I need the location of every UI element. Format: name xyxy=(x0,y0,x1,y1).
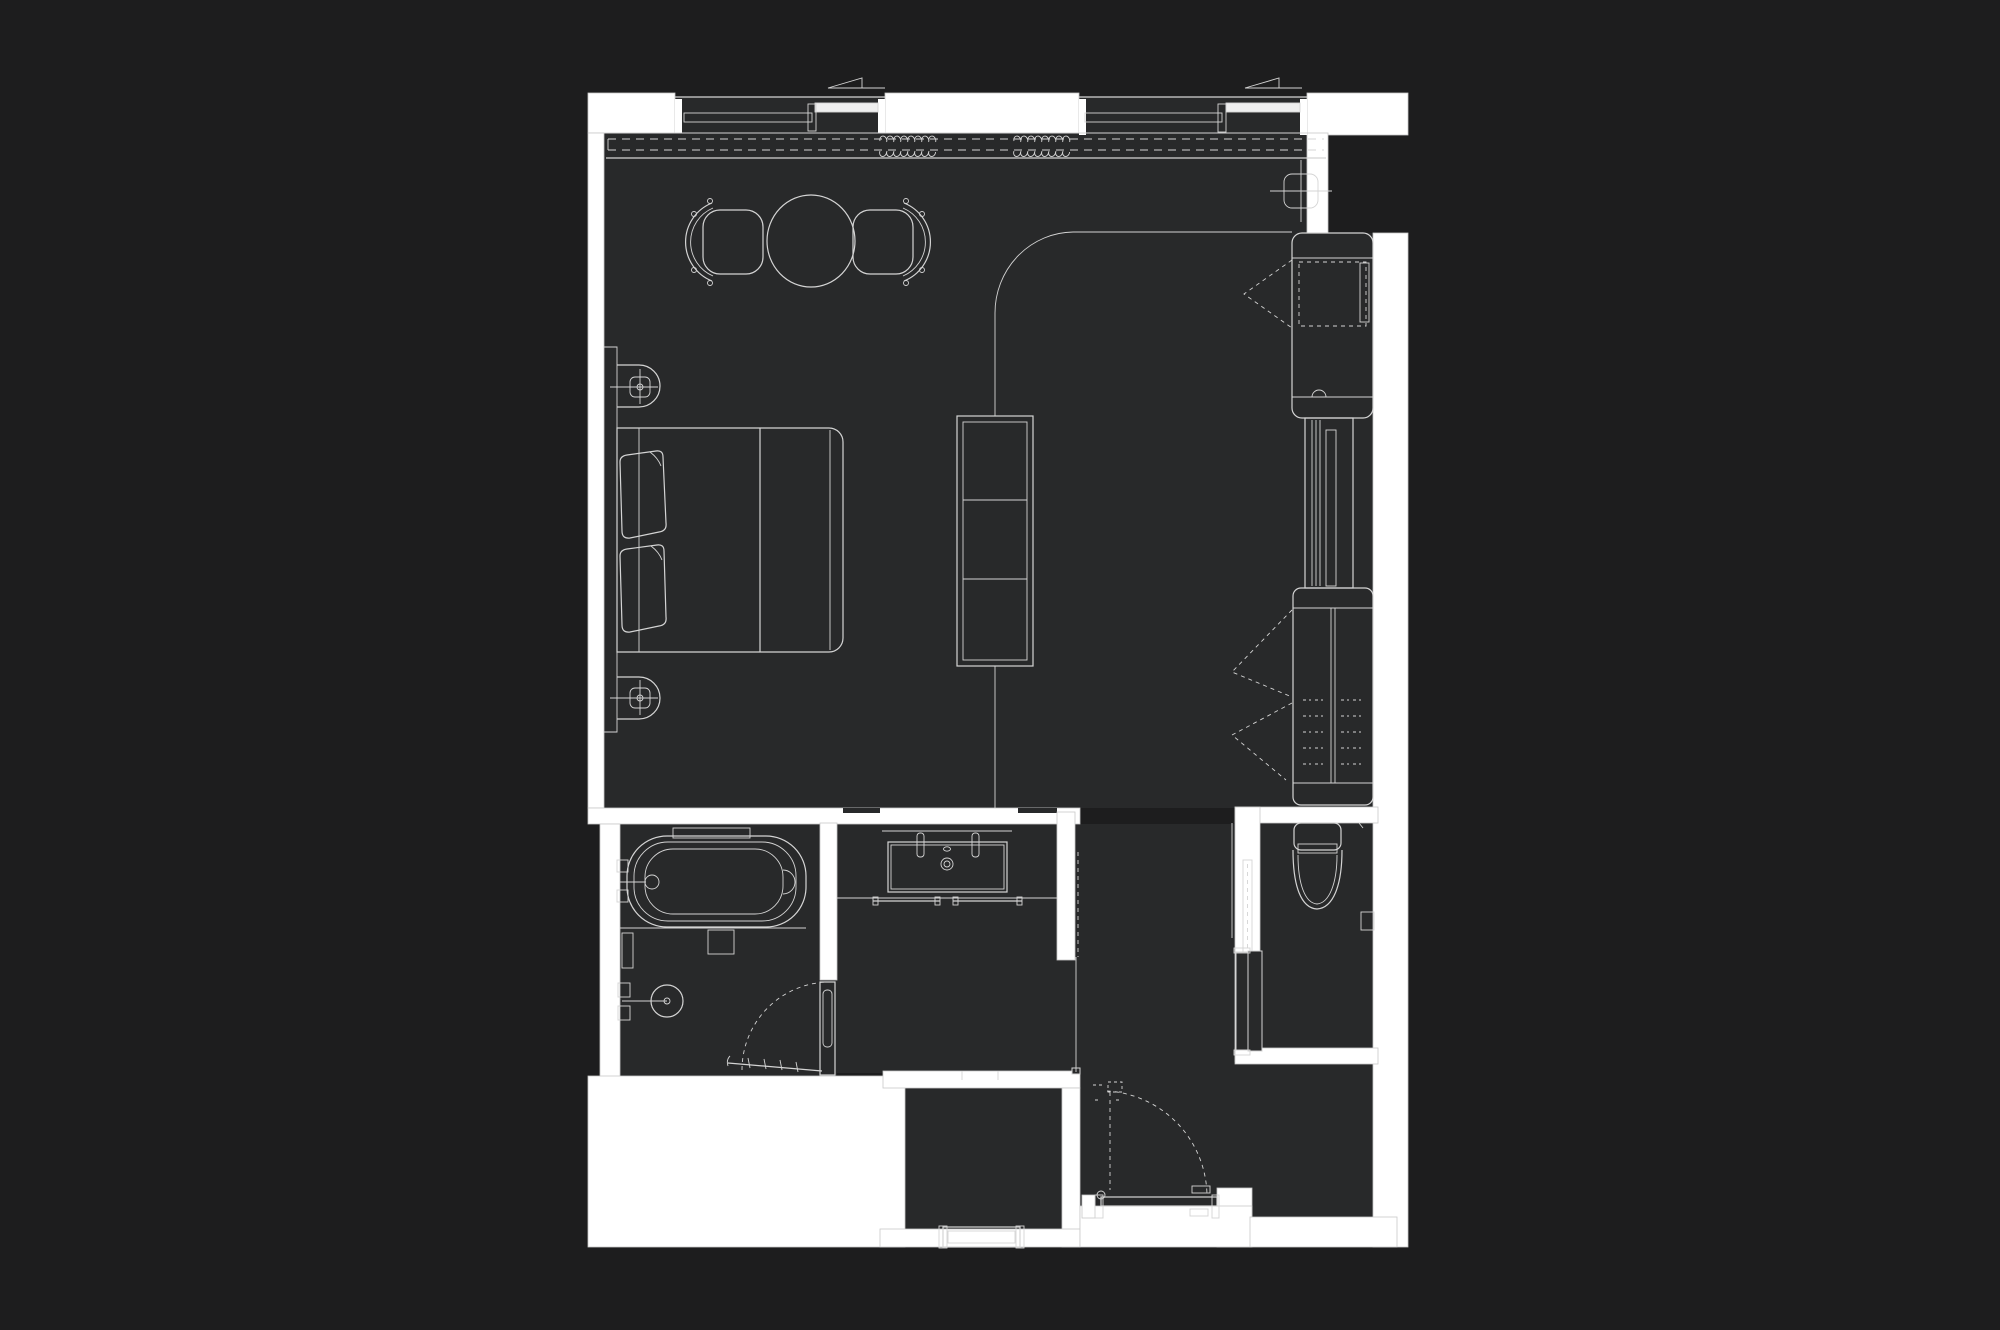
floor-storage-room xyxy=(905,1088,1062,1229)
wall-storage-north xyxy=(883,1071,1080,1088)
wall-window-pier xyxy=(885,93,1079,133)
wall-top-left-corner xyxy=(588,93,675,133)
window-right-sash-2 xyxy=(1226,103,1300,112)
wall-entry-threshold xyxy=(1080,1206,1252,1247)
window-right-opening-flag xyxy=(1245,78,1302,88)
wall-bathroom-vanity-divider xyxy=(820,823,837,980)
wall-vanity-east xyxy=(1057,812,1075,960)
wall-storage-south xyxy=(880,1229,1080,1247)
wall-entry-door-jamb xyxy=(1082,1195,1095,1218)
wall-east-upper-strip xyxy=(1307,133,1328,233)
floor-lobby xyxy=(837,824,1235,1073)
floor-bedroom xyxy=(604,133,1307,808)
floor-bathroom xyxy=(620,824,820,1076)
wall-mass-southwest xyxy=(588,1076,905,1247)
window-left-jamb-e xyxy=(878,99,885,133)
wall-west xyxy=(588,133,604,808)
floor-plan-canvas xyxy=(0,0,2000,1330)
wall-notch-2 xyxy=(1018,808,1057,813)
wc-door-panel-1 xyxy=(1236,952,1248,1050)
window-right-jamb-e xyxy=(1300,99,1307,135)
wall-east xyxy=(1373,233,1408,1247)
wall-entry-south xyxy=(1250,1217,1397,1247)
floor-bathroom-doorway xyxy=(818,980,837,1077)
floor-plan xyxy=(0,0,2000,1330)
wc-door-panel-2 xyxy=(1248,951,1262,1051)
floor-window-left-recess xyxy=(675,97,885,133)
wall-storage-east xyxy=(1062,1088,1080,1247)
floor-bedroom-east xyxy=(1307,233,1373,808)
window-left-opening-flag xyxy=(828,78,885,88)
wall-top-right-corner xyxy=(1307,93,1408,135)
window-left-sash-2 xyxy=(815,103,878,112)
floor-entry xyxy=(1080,1064,1235,1207)
window-left-jamb-w xyxy=(675,99,682,133)
wall-notch-1 xyxy=(843,808,880,813)
floor-wc xyxy=(1260,823,1375,1048)
wall-bedroom-south xyxy=(588,808,1080,824)
